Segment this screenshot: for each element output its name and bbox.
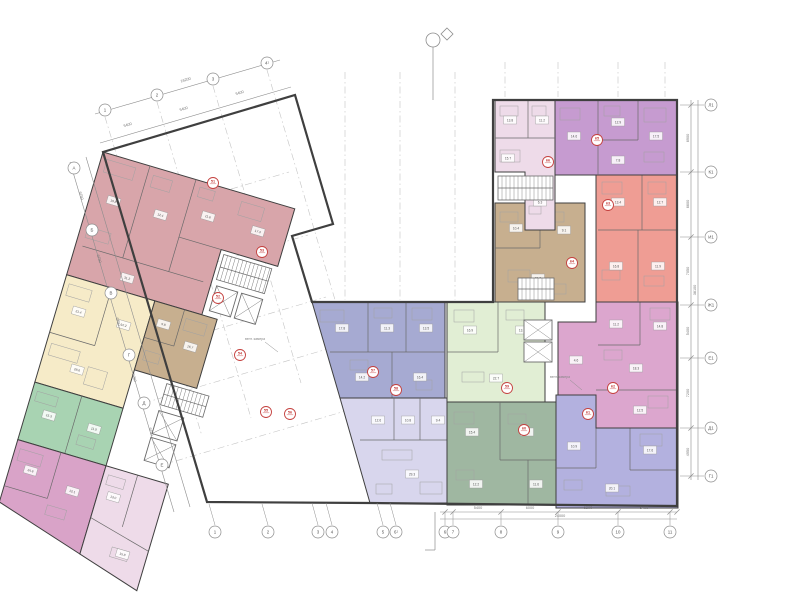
apartment-number: 65 (595, 137, 599, 141)
room-area-label: 18.3 (633, 366, 639, 370)
room-area-label: 12.6 (375, 418, 381, 422)
dim-label: 5400 (179, 106, 188, 112)
annotation-text: вент. камера (245, 337, 265, 341)
stairwell (498, 176, 553, 200)
axis-bubble-label: Д (143, 401, 146, 406)
axis-bubble-label: Л1 (708, 103, 714, 108)
apartment-lavender: 12.610.89.429.3 (340, 398, 450, 503)
apartment-number: 62 (611, 385, 615, 389)
room-area-label: 20.1 (609, 486, 615, 490)
apartment-number: 66 (546, 159, 550, 163)
room-area-label: 15.7 (505, 156, 511, 160)
room-area-label: 14.8 (657, 324, 663, 328)
room-area-label: 15.4 (469, 430, 475, 434)
room-area-label: 17.5 (653, 134, 659, 138)
room-area-label: 22.7 (493, 376, 499, 380)
elevator-shaft (524, 320, 552, 340)
dim-label: 7200 (686, 389, 690, 397)
room-area-label: 9.4 (436, 418, 441, 422)
apartment-number: 57 (371, 369, 375, 373)
apartment-lavender-outline (340, 398, 450, 503)
dim-label: 16200 (180, 77, 191, 84)
room-area-label: 17.6 (647, 448, 653, 452)
apartment-number: 60 (522, 427, 526, 431)
axis-bubble-label: В (110, 291, 113, 296)
dim-label: 5400 (474, 506, 482, 510)
apartment-salmon: 13.412.716.811.9 (596, 175, 677, 302)
room-area-label: 6.3 (538, 200, 543, 204)
room-area-label: 12.5 (637, 408, 643, 412)
dim-label: 5400 (640, 506, 648, 510)
dim-label: 5400 (123, 122, 132, 128)
dim-label: 7050 (686, 267, 690, 275)
leader-line (377, 503, 383, 525)
room-area-label: 11.3 (384, 326, 390, 330)
dim-label: 6750 (78, 191, 84, 200)
axis-bubble-label: 10 (616, 530, 621, 535)
axis-bubble-label: Ж1 (708, 303, 715, 308)
group-main-block: 17.811.313.514.216.412.610.89.429.316.91… (312, 100, 678, 508)
leader-line (326, 503, 332, 525)
axis-bubble-label: А (73, 166, 76, 171)
leader-line (209, 504, 215, 525)
apartment-periwinkle: 17.811.313.514.216.4 (312, 302, 445, 398)
room-area-label: 17.8 (339, 326, 345, 330)
room-area-label: 16.9 (467, 328, 473, 332)
apartment-sage: 15.413.712.211.6 (447, 402, 556, 505)
axis-bubble-label: К1 (709, 170, 715, 175)
dim-label: 6300 (584, 506, 592, 510)
north-arrow-icon (426, 33, 440, 47)
apartment-number: 56 (288, 411, 292, 415)
floor-plan-canvas: 19.812.411.617.331.221.410.228.69.816.71… (0, 0, 800, 600)
room-area-label: 10.4 (513, 226, 519, 230)
leader-line (312, 503, 318, 525)
apartment-number: 53 (260, 249, 264, 253)
elevator-shaft (234, 293, 262, 324)
leader-line (390, 503, 396, 525)
annotation-text: вент. камера (550, 375, 570, 379)
dim-label: 6600 (686, 200, 690, 208)
room-area-label: 7.8 (616, 158, 621, 162)
room-area-label: 12.2 (473, 482, 479, 486)
apartment-periwinkle-outline (312, 302, 445, 398)
room-area-label: 29.3 (409, 472, 415, 476)
apartment-number: 63 (606, 202, 610, 206)
axis-bubble-label: Г1 (709, 474, 714, 479)
room-area-label: 9.1 (562, 228, 567, 232)
elevator-shaft (152, 411, 184, 441)
axis-bubble-label: 6¹ (394, 530, 398, 535)
room-area-label: 13.5 (423, 326, 429, 330)
elevator-shaft (524, 342, 552, 362)
apartment-number: 59 (505, 385, 509, 389)
axis-bubble-label: 4¹ (265, 61, 269, 66)
apartment-purple: 14.612.917.57.8 (555, 100, 677, 175)
axis-bubble-label: 11 (668, 530, 673, 535)
stairwell (161, 384, 209, 418)
room-area-label: 10.8 (405, 418, 411, 422)
apartment-number: 52 (216, 295, 220, 299)
room-area-label: 11.2 (613, 322, 619, 326)
room-area-label: 13.8 (507, 118, 513, 122)
floor-plan-drawing: 19.812.411.617.331.221.410.228.69.816.71… (0, 0, 800, 600)
apartment-number: 55 (264, 409, 268, 413)
leader-line (262, 504, 268, 525)
dim-label: 6900 (686, 134, 690, 142)
group-left-wing: 19.812.411.617.331.221.410.228.69.816.71… (0, 152, 295, 600)
stairwell (518, 278, 554, 300)
room-area-label: 12.7 (657, 200, 663, 204)
room-area-label: 12.9 (615, 120, 621, 124)
leader-line (265, 342, 278, 352)
apartment-number: 58 (394, 387, 398, 391)
axis-bubble-label: Д1 (708, 426, 714, 431)
room-area-label: 11.2 (539, 118, 545, 122)
axis-bubble-label: Е1 (708, 356, 714, 361)
room-area-label: 14.2 (359, 375, 365, 379)
room-area-label: 11.9 (655, 264, 661, 268)
north-diamond-icon (441, 28, 453, 40)
room-area-label: 14.6 (571, 134, 577, 138)
dim-label: 4950 (686, 448, 690, 456)
apartment-number: 51 (211, 180, 215, 184)
apartment-number: 61 (586, 411, 590, 415)
axis-bubble-label: И1 (708, 235, 714, 240)
dim-label: 6000 (526, 506, 534, 510)
dim-label: 24000 (555, 514, 566, 518)
dim-label: 5400 (686, 327, 690, 335)
axis-bubble-label: Б (91, 228, 94, 233)
room-area-label: 4.6 (574, 358, 579, 362)
dim-label: 5400 (235, 90, 244, 96)
axis-bubble-label: Е (161, 463, 164, 468)
room-area-label: 10.9 (571, 444, 577, 448)
room-area-label: 11.6 (533, 482, 539, 486)
room-area-label: 13.4 (615, 200, 621, 204)
dim-label: 38100 (693, 285, 697, 296)
apartment-sage-outline (447, 402, 556, 505)
room-area-label: 16.8 (613, 264, 619, 268)
room-area-label: 16.4 (417, 375, 423, 379)
